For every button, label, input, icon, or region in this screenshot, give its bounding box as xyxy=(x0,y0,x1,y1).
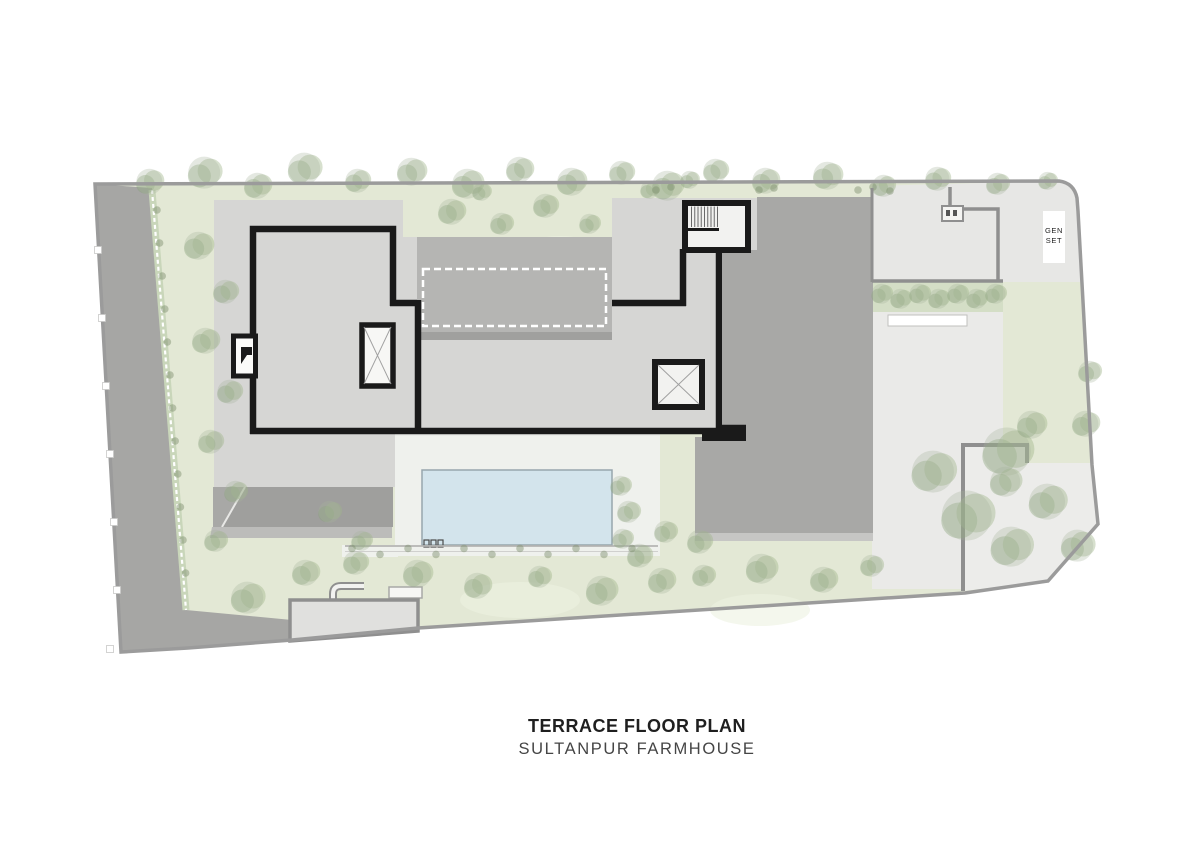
tree-foliage xyxy=(586,576,616,606)
tree-foliage xyxy=(1029,484,1065,520)
tree-foliage xyxy=(667,183,675,191)
roof-block-surface xyxy=(417,237,612,332)
staircase xyxy=(685,203,748,250)
tree-foliage xyxy=(244,173,270,199)
boundary-gate-tick xyxy=(114,587,121,594)
tree-foliage xyxy=(292,560,318,586)
tree-foliage xyxy=(376,551,384,559)
tree-foliage xyxy=(544,551,552,559)
tree-foliage xyxy=(318,501,340,523)
tree-foliage xyxy=(681,171,699,189)
tree-foliage xyxy=(755,186,763,194)
tree-foliage xyxy=(990,467,1020,497)
tree-foliage xyxy=(687,530,711,554)
tree-foliage xyxy=(490,213,512,235)
tree-foliage xyxy=(213,280,237,304)
tree-foliage xyxy=(860,555,882,577)
tree-foliage xyxy=(600,551,608,559)
tree-foliage xyxy=(617,501,639,523)
tree-foliage xyxy=(628,545,636,553)
tree xyxy=(1072,411,1100,437)
utility-box xyxy=(942,206,963,221)
tree xyxy=(703,159,729,183)
tree-foliage xyxy=(473,183,491,201)
tree-foliage xyxy=(1017,411,1045,439)
entry-steps xyxy=(389,587,422,598)
tree-foliage xyxy=(910,284,930,304)
boundary-gate-tick xyxy=(111,519,118,526)
drawing-title: TERRACE FLOOR PLAN xyxy=(337,716,937,738)
tree-foliage xyxy=(432,551,440,559)
tree-foliage xyxy=(652,186,660,194)
tree-foliage xyxy=(692,565,714,587)
tree-foliage xyxy=(580,214,600,234)
tree-foliage xyxy=(891,289,911,309)
utility-mark xyxy=(946,210,950,216)
tree-foliage xyxy=(198,430,222,454)
tree-foliage xyxy=(231,582,263,614)
boundary-gate-tick xyxy=(107,451,114,458)
tree-foliage xyxy=(886,187,894,195)
tree-foliage xyxy=(611,476,631,496)
genset-text-line2: SET xyxy=(1046,236,1062,245)
tree-foliage xyxy=(942,491,992,541)
tree-foliage xyxy=(169,404,177,412)
tree-foliage xyxy=(460,545,468,553)
tree-foliage xyxy=(192,328,218,354)
tree-foliage xyxy=(854,186,862,194)
roof-dark-shadow xyxy=(695,533,873,541)
tree-foliage xyxy=(813,162,841,190)
tree-foliage xyxy=(948,284,968,304)
roof-block-shadow xyxy=(421,332,612,340)
tree-foliage xyxy=(872,284,892,304)
tree-foliage xyxy=(516,545,524,553)
tree-foliage xyxy=(161,305,169,313)
tree-foliage xyxy=(153,206,161,214)
tree-foliage xyxy=(438,199,464,225)
tree-foliage xyxy=(174,470,182,478)
tree-foliage xyxy=(171,437,179,445)
tree-foliage xyxy=(345,169,369,193)
tree-foliage xyxy=(166,371,174,379)
tree-foliage xyxy=(528,566,550,588)
tree xyxy=(1078,361,1102,383)
tree-foliage xyxy=(533,194,557,218)
genset-label: GEN SET xyxy=(1043,211,1065,263)
swimming-pool xyxy=(422,470,612,545)
tree-foliage xyxy=(177,503,185,511)
utility-mark xyxy=(953,210,957,216)
tree-foliage xyxy=(703,159,727,183)
tree xyxy=(506,157,534,183)
boundary-gate-tick xyxy=(95,247,102,254)
tree-foliage xyxy=(986,173,1008,195)
tree-foliage xyxy=(925,167,949,191)
tree-foliage xyxy=(464,573,490,599)
tree-foliage xyxy=(986,284,1006,304)
tree-foliage xyxy=(929,289,949,309)
boundary-gate-tick xyxy=(107,646,114,653)
roof-dashed-block xyxy=(417,237,612,340)
tree-foliage xyxy=(156,239,164,247)
tree-foliage xyxy=(991,527,1031,567)
tree-foliage xyxy=(1072,411,1098,437)
tree-foliage xyxy=(648,568,674,594)
tree-foliage xyxy=(488,551,496,559)
tree-foliage xyxy=(158,272,166,280)
boundary-gate-tick xyxy=(103,383,110,390)
tree-foliage xyxy=(164,338,172,346)
tree-foliage xyxy=(810,567,836,593)
elevator-shaft xyxy=(362,325,393,386)
tree-foliage xyxy=(343,551,367,575)
tree-foliage xyxy=(770,184,778,192)
tree-foliage xyxy=(136,169,162,195)
skylight-shaft xyxy=(655,362,702,407)
tree-foliage xyxy=(1078,361,1100,383)
wall-end-pier xyxy=(702,429,746,441)
project-name: SULTANPUR FARMHOUSE xyxy=(337,738,937,760)
boundary-gate-tick xyxy=(99,315,106,322)
court-planter-bar xyxy=(888,315,967,326)
tree-foliage xyxy=(967,289,987,309)
tree-foliage xyxy=(224,481,246,503)
tree-foliage xyxy=(184,232,212,260)
genset-text-line1: GEN xyxy=(1045,226,1063,235)
tree-foliage xyxy=(217,380,241,404)
tree-foliage xyxy=(179,536,187,544)
tree-foliage xyxy=(404,545,412,553)
tree-foliage xyxy=(572,545,580,553)
title-block: TERRACE FLOOR PLAN SULTANPUR FARMHOUSE xyxy=(337,716,937,760)
tree-foliage xyxy=(348,545,356,553)
tree-foliage xyxy=(912,451,954,493)
tree-foliage xyxy=(182,569,190,577)
tree-foliage xyxy=(506,157,532,183)
tree xyxy=(288,153,323,185)
tree-foliage xyxy=(654,521,676,543)
tree-foliage xyxy=(288,153,320,185)
duct-box xyxy=(234,336,256,376)
tree-foliage xyxy=(403,560,431,588)
tree-foliage xyxy=(746,554,776,584)
tree-foliage xyxy=(204,530,226,552)
